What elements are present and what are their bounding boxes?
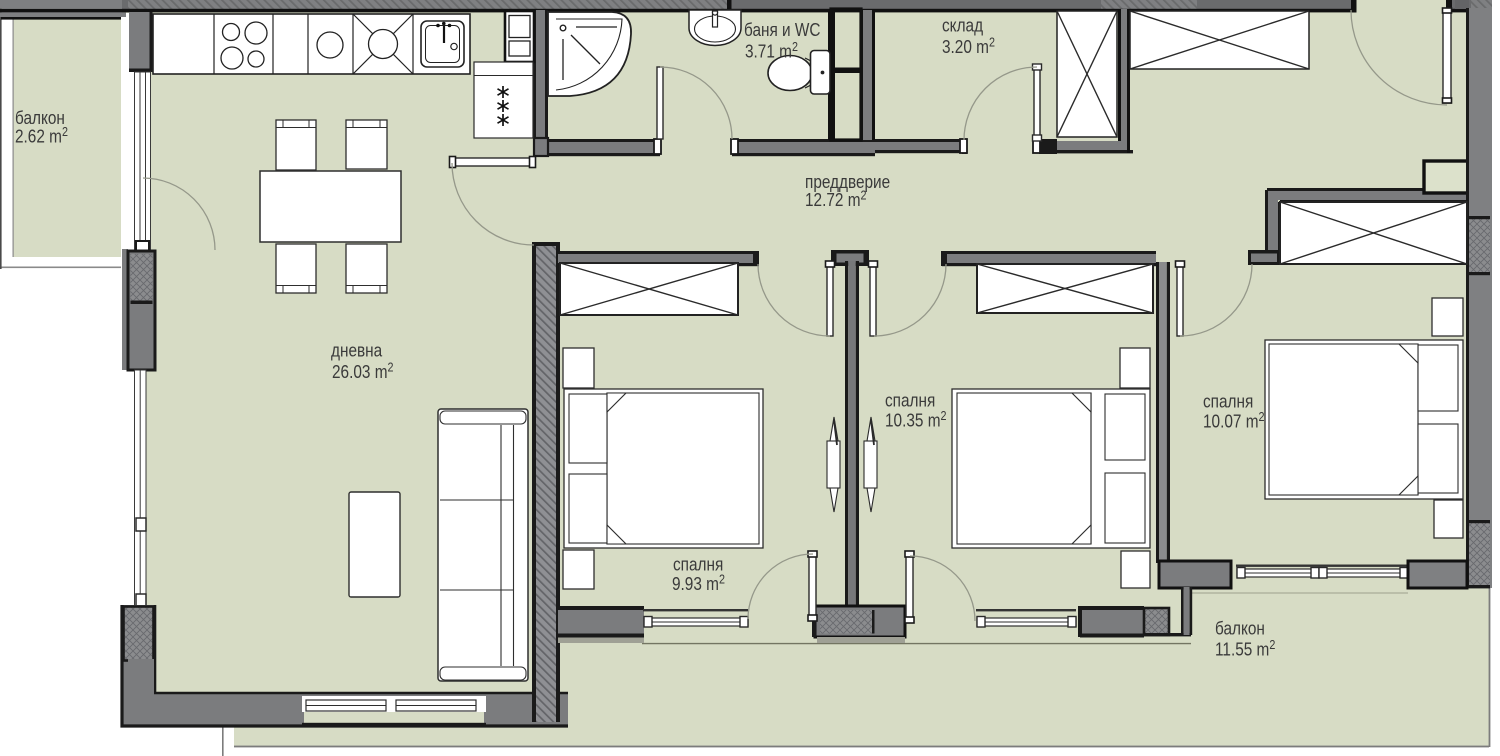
svg-text:26.03 m2: 26.03 m2	[332, 360, 394, 383]
svg-text:3.20 m2: 3.20 m2	[942, 35, 995, 58]
svg-text:10.35 m2: 10.35 m2	[885, 408, 947, 431]
svg-text:склад: склад	[942, 15, 983, 36]
svg-text:12.72 m2: 12.72 m2	[805, 188, 867, 211]
svg-text:11.55 m2: 11.55 m2	[1215, 637, 1276, 660]
svg-text:2.62 m2: 2.62 m2	[15, 124, 68, 147]
svg-text:спалня: спалня	[1203, 391, 1253, 412]
svg-text:3.71 m2: 3.71 m2	[745, 39, 798, 62]
svg-text:балкон: балкон	[1215, 618, 1265, 639]
svg-text:баня и WC: баня и WC	[744, 20, 820, 41]
svg-text:спалня: спалня	[673, 554, 723, 575]
svg-text:спалня: спалня	[885, 390, 935, 411]
svg-text:дневна: дневна	[331, 340, 383, 361]
svg-text:9.93 m2: 9.93 m2	[672, 572, 725, 595]
svg-text:10.07 m2: 10.07 m2	[1203, 409, 1265, 432]
